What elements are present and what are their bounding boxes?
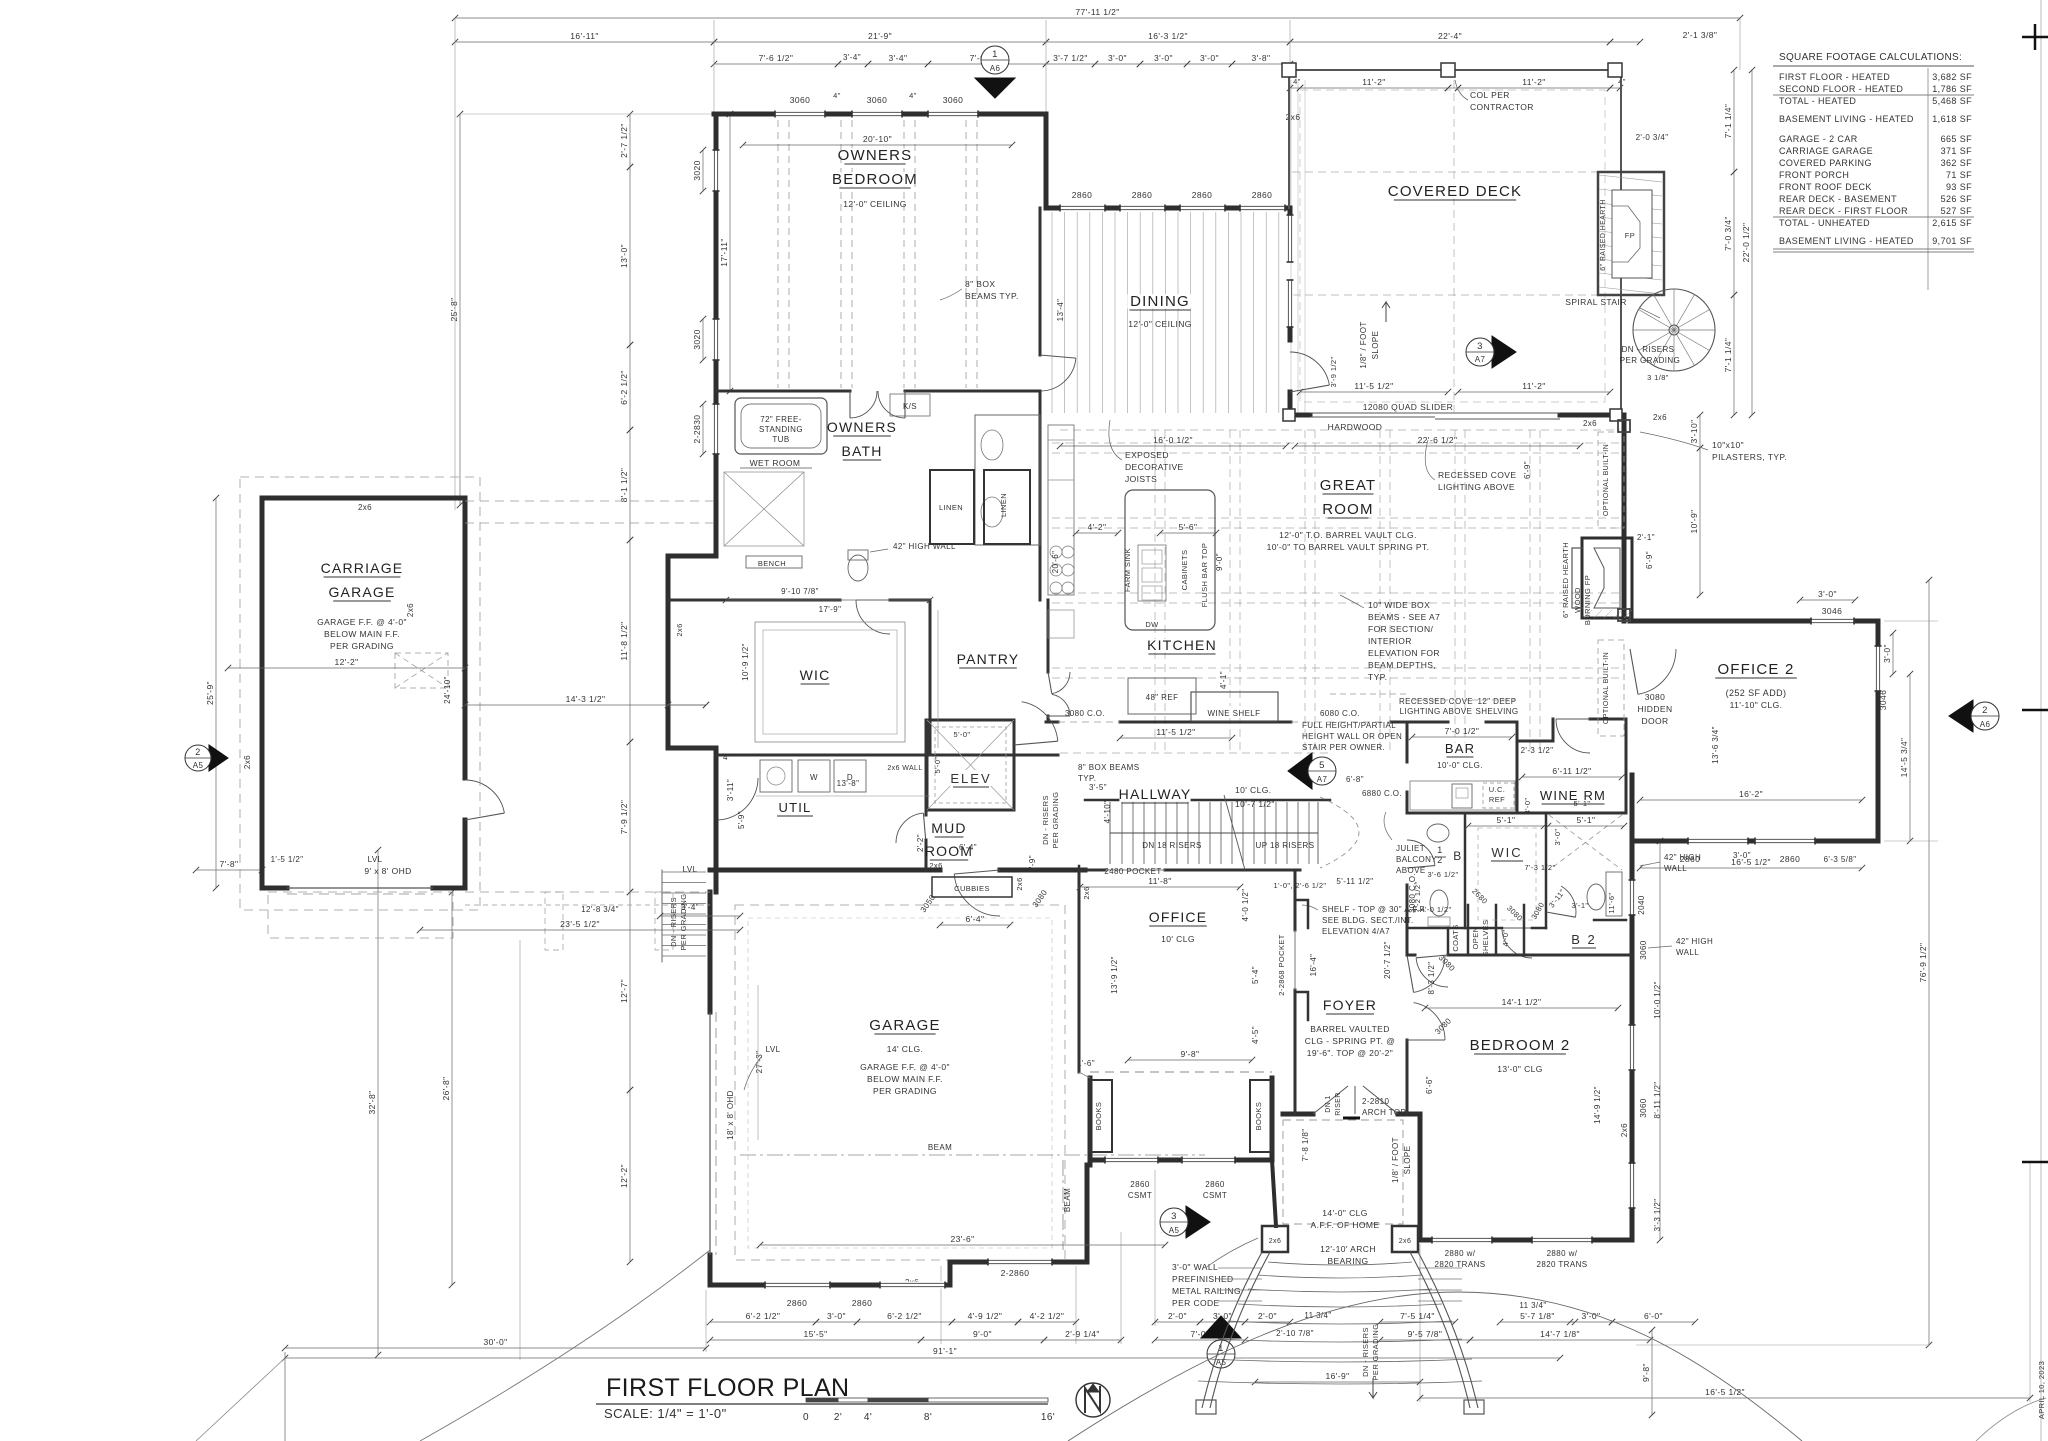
svg-text:6" RAISED HEARTH: 6" RAISED HEARTH — [1561, 542, 1570, 618]
svg-text:3'-4": 3'-4" — [889, 53, 908, 63]
svg-text:DN - RISERS: DN - RISERS — [1041, 795, 1050, 845]
svg-text:RECESSED COVE: RECESSED COVE — [1438, 470, 1516, 480]
svg-text:4": 4" — [723, 753, 731, 762]
svg-text:2x6: 2x6 — [675, 623, 684, 636]
svg-text:12'-0" CEILING: 12'-0" CEILING — [843, 199, 907, 209]
svg-text:24'-10": 24'-10" — [443, 676, 452, 704]
svg-text:6'-0": 6'-0" — [1644, 1311, 1663, 1321]
svg-text:7'-9 1/2": 7'-9 1/2" — [619, 800, 629, 835]
svg-text:1: 1 — [992, 49, 998, 60]
svg-text:3'-0": 3'-0" — [1818, 589, 1837, 599]
svg-text:2x6: 2x6 — [1399, 1238, 1412, 1245]
svg-text:20'-7 1/2": 20'-7 1/2" — [1383, 941, 1392, 979]
svg-text:FULL HEIGHT/PARTIAL: FULL HEIGHT/PARTIAL — [1302, 721, 1396, 730]
svg-text:3080: 3080 — [1645, 692, 1666, 702]
svg-text:3060: 3060 — [1639, 1098, 1648, 1118]
svg-text:1/8" / FOOT: 1/8" / FOOT — [1359, 321, 1368, 368]
svg-text:3'-0": 3'-0" — [1523, 798, 1532, 815]
svg-text:13'-4": 13'-4" — [1056, 299, 1065, 322]
svg-text:8'-1 1/2": 8'-1 1/2" — [619, 468, 629, 503]
svg-text:3020: 3020 — [692, 160, 702, 181]
svg-text:2-2868 POCKET: 2-2868 POCKET — [1277, 934, 1286, 995]
svg-text:7'-8 1/8": 7'-8 1/8" — [1301, 1129, 1310, 1162]
svg-text:2860: 2860 — [1130, 1180, 1150, 1189]
svg-text:3'-4": 3'-4" — [843, 53, 861, 62]
svg-text:8" BOX: 8" BOX — [965, 279, 995, 289]
svg-text:2480 POCKET: 2480 POCKET — [1104, 867, 1161, 876]
svg-text:16'-5 1/2": 16'-5 1/2" — [1731, 857, 1771, 867]
svg-text:13'-8": 13'-8" — [837, 779, 860, 788]
svg-text:3'-0": 3'-0" — [1882, 644, 1892, 663]
svg-text:26'-8": 26'-8" — [441, 1076, 451, 1100]
svg-text:6'-9": 6'-9" — [1523, 461, 1532, 479]
svg-text:5'-6": 5'-6" — [1179, 522, 1198, 532]
svg-text:COL PER: COL PER — [1470, 90, 1510, 100]
svg-text:2820 TRANS: 2820 TRANS — [1537, 1260, 1588, 1269]
svg-text:ELEV: ELEV — [950, 771, 991, 786]
svg-text:2x6: 2x6 — [243, 755, 252, 769]
svg-text:527 SF: 527 SF — [1941, 206, 1973, 216]
svg-text:2,615 SF: 2,615 SF — [1932, 218, 1972, 228]
svg-text:SHELVES: SHELVES — [1481, 920, 1490, 957]
svg-text:3'-1": 3'-1" — [1572, 901, 1589, 910]
svg-text:12'-7": 12'-7" — [619, 979, 629, 1003]
svg-text:BATH: BATH — [841, 443, 882, 459]
svg-text:BEDROOM: BEDROOM — [832, 171, 918, 188]
svg-text:2x6: 2x6 — [1269, 1238, 1282, 1245]
svg-text:BENCH: BENCH — [758, 559, 786, 568]
svg-text:APRIL 10, 2023: APRIL 10, 2023 — [2037, 1361, 2046, 1419]
svg-text:13'-9 1/2": 13'-9 1/2" — [1110, 956, 1119, 994]
svg-text:DN 18 RISERS: DN 18 RISERS — [1142, 841, 1201, 850]
svg-text:8'-11 1/2": 8'-11 1/2" — [1653, 1081, 1662, 1118]
svg-text:25'-8": 25'-8" — [449, 297, 459, 321]
svg-text:3'-11": 3'-11" — [726, 779, 735, 801]
svg-text:BARREL VAULTED: BARREL VAULTED — [1310, 1024, 1390, 1034]
svg-text:FRONT ROOF DECK: FRONT ROOF DECK — [1779, 182, 1872, 192]
svg-text:10'-0" TO BARREL VAULT SPRING: 10'-0" TO BARREL VAULT SPRING PT. — [1267, 542, 1430, 552]
svg-text:3046: 3046 — [1822, 606, 1843, 616]
svg-text:COVERED DECK: COVERED DECK — [1388, 183, 1522, 200]
svg-text:PER GRADING: PER GRADING — [1371, 1324, 1380, 1381]
svg-text:10"x10": 10"x10" — [1712, 440, 1744, 450]
svg-text:11'-6": 11'-6" — [1607, 893, 1616, 914]
svg-text:12'-8 3/4": 12'-8 3/4" — [581, 905, 619, 914]
svg-text:7'-1 1/4": 7'-1 1/4" — [1723, 338, 1733, 373]
svg-text:22'-0 1/2": 22'-0 1/2" — [1741, 223, 1751, 263]
svg-text:EXPOSED: EXPOSED — [1125, 450, 1169, 460]
svg-text:STAIR PER OWNER.: STAIR PER OWNER. — [1302, 743, 1385, 752]
svg-text:COATS: COATS — [1451, 924, 1460, 951]
svg-text:LIGHTING ABOVE: LIGHTING ABOVE — [1438, 482, 1515, 492]
svg-text:GARAGE: GARAGE — [869, 1017, 940, 1034]
svg-text:UTIL: UTIL — [779, 800, 812, 815]
svg-text:12080 QUAD SLIDER: 12080 QUAD SLIDER — [1363, 402, 1453, 412]
svg-text:5'-9": 5'-9" — [1028, 855, 1037, 873]
svg-text:6'-2 1/2": 6'-2 1/2" — [746, 1311, 781, 1321]
svg-text:PER GRADING: PER GRADING — [330, 641, 394, 651]
svg-text:BOOKS: BOOKS — [1254, 1102, 1263, 1131]
svg-text:17'-11": 17'-11" — [719, 238, 729, 267]
svg-text:3 1/8": 3 1/8" — [1647, 373, 1669, 382]
svg-text:3'-7 1/2": 3'-7 1/2" — [1053, 53, 1088, 63]
svg-text:FRONT PORCH: FRONT PORCH — [1779, 170, 1849, 180]
svg-text:4": 4" — [1293, 77, 1301, 86]
svg-text:3'-0": 3'-0" — [827, 1311, 846, 1321]
svg-text:WALL: WALL — [1676, 948, 1699, 957]
svg-text:2860: 2860 — [1252, 190, 1273, 200]
svg-text:DN - RISERS: DN - RISERS — [1361, 1327, 1370, 1377]
svg-text:3080 C.O.: 3080 C.O. — [1065, 709, 1105, 718]
svg-text:TOTAL - HEATED: TOTAL - HEATED — [1779, 96, 1856, 106]
svg-text:11'-10" CLG.: 11'-10" CLG. — [1730, 700, 1783, 710]
svg-text:10'-9": 10'-9" — [1689, 509, 1699, 533]
svg-text:6'-4": 6'-4" — [959, 843, 977, 852]
svg-text:11'-8 1/2": 11'-8 1/2" — [619, 621, 629, 660]
svg-text:WET ROOM: WET ROOM — [750, 458, 801, 468]
svg-text:ROOM: ROOM — [1322, 501, 1373, 518]
svg-text:11 3/4": 11 3/4" — [1519, 1301, 1546, 1310]
svg-text:SLOPE: SLOPE — [1403, 1146, 1412, 1175]
svg-text:OPTIONAL BUILT-IN: OPTIONAL BUILT-IN — [1603, 444, 1610, 516]
svg-text:2x6: 2x6 — [406, 603, 415, 617]
svg-text:93 SF: 93 SF — [1946, 182, 1972, 192]
svg-text:BELOW MAIN F.F.: BELOW MAIN F.F. — [324, 629, 400, 639]
svg-text:2'-7 1/2": 2'-7 1/2" — [619, 123, 629, 158]
svg-text:6'-6": 6'-6" — [1425, 1076, 1434, 1094]
svg-text:4'-2": 4'-2" — [1088, 522, 1107, 532]
svg-text:371 SF: 371 SF — [1941, 146, 1973, 156]
svg-text:11'-5 1/2": 11'-5 1/2" — [1354, 381, 1393, 391]
svg-text:362 SF: 362 SF — [1941, 158, 1973, 168]
svg-text:4'-0": 4'-0" — [1501, 930, 1510, 947]
svg-text:RISER: RISER — [1335, 1092, 1342, 1115]
svg-text:12'-0" CEILING: 12'-0" CEILING — [1128, 319, 1192, 329]
svg-text:CUBBIES: CUBBIES — [954, 884, 990, 893]
svg-text:5'-0": 5'-0" — [933, 757, 942, 774]
svg-text:SPIRAL STAIR: SPIRAL STAIR — [1565, 297, 1626, 307]
svg-text:2860: 2860 — [852, 1298, 873, 1308]
svg-text:6'-11 1/2": 6'-11 1/2" — [1552, 766, 1591, 776]
svg-text:11'-5 1/2": 11'-5 1/2" — [1156, 727, 1195, 737]
svg-text:10'-9 1/2": 10'-9 1/2" — [741, 643, 750, 681]
svg-text:JOISTS: JOISTS — [1125, 474, 1157, 484]
svg-text:6'-9": 6'-9" — [1645, 551, 1654, 569]
svg-text:LVL: LVL — [766, 1045, 781, 1054]
svg-text:A7: A7 — [1475, 355, 1486, 364]
svg-text:BALCONY: BALCONY — [1396, 855, 1437, 864]
svg-text:2860: 2860 — [787, 1298, 808, 1308]
svg-text:COVERED PARKING: COVERED PARKING — [1779, 158, 1872, 168]
svg-text:OPEN: OPEN — [1471, 927, 1480, 950]
svg-text:9'-5 7/8": 9'-5 7/8" — [1408, 1329, 1443, 1339]
svg-text:16'-4": 16'-4" — [1309, 954, 1318, 977]
svg-text:ELEVATION FOR: ELEVATION FOR — [1368, 648, 1440, 658]
svg-text:22'-4": 22'-4" — [1438, 31, 1462, 41]
svg-text:9'-0": 9'-0" — [1215, 553, 1224, 571]
svg-text:BEDROOM 2: BEDROOM 2 — [1470, 1037, 1571, 1054]
svg-text:BASEMENT LIVING - HEATED: BASEMENT LIVING - HEATED — [1779, 236, 1914, 246]
svg-text:K/S: K/S — [903, 402, 917, 411]
svg-text:OWNERS: OWNERS — [838, 147, 913, 164]
svg-text:B 2: B 2 — [1571, 932, 1597, 947]
svg-text:TYP.: TYP. — [1078, 774, 1096, 783]
svg-text:2x6: 2x6 — [1082, 886, 1091, 899]
svg-text:BASEMENT LIVING - HEATED: BASEMENT LIVING - HEATED — [1779, 114, 1914, 124]
svg-text:RECESSED COVE: RECESSED COVE — [1399, 697, 1473, 706]
svg-text:5'-1": 5'-1" — [1497, 815, 1516, 825]
svg-text:11'-2": 11'-2" — [1522, 381, 1545, 391]
svg-text:JULIET: JULIET — [1396, 844, 1425, 853]
svg-text:U.C.: U.C. — [1489, 785, 1506, 794]
svg-text:1: 1 — [1437, 845, 1442, 855]
svg-text:30'-0": 30'-0" — [483, 1337, 507, 1347]
svg-text:PER CODE: PER CODE — [1172, 1298, 1220, 1308]
svg-text:DINING: DINING — [1130, 293, 1190, 310]
svg-text:2'-0": 2'-0" — [1258, 1311, 1277, 1321]
svg-text:4'-5": 4'-5" — [1251, 1026, 1260, 1044]
svg-text:TYP.: TYP. — [1368, 672, 1387, 682]
svg-text:2820 TRANS: 2820 TRANS — [1435, 1260, 1486, 1269]
svg-text:4'-0 1/2": 4'-0 1/2" — [1241, 889, 1250, 922]
svg-text:3'-3 1/2": 3'-3 1/2" — [1653, 1199, 1662, 1232]
svg-text:4'-9 1/2": 4'-9 1/2" — [968, 1311, 1003, 1321]
svg-text:SLOPE: SLOPE — [1371, 331, 1380, 360]
svg-text:4'-2 1/2": 4'-2 1/2" — [1030, 1311, 1065, 1321]
svg-text:3'-9 1/2": 3'-9 1/2" — [1329, 356, 1338, 387]
svg-text:SECOND FLOOR - HEATED: SECOND FLOOR - HEATED — [1779, 84, 1903, 94]
svg-text:2x6: 2x6 — [1286, 112, 1301, 122]
svg-text:22'-6 1/2": 22'-6 1/2" — [1418, 435, 1458, 445]
svg-text:GARAGE F.F. @ 4'-0": GARAGE F.F. @ 4'-0" — [317, 617, 407, 627]
svg-text:FOYER: FOYER — [1323, 997, 1377, 1013]
svg-text:14'-9 1/2": 14'-9 1/2" — [1593, 1086, 1602, 1124]
svg-text:6880 C.O.: 6880 C.O. — [1362, 789, 1402, 798]
svg-text:16'-9": 16'-9" — [1325, 1371, 1349, 1381]
svg-text:1,786 SF: 1,786 SF — [1932, 84, 1972, 94]
svg-text:3'-0": 3'-0" — [1108, 53, 1127, 63]
svg-text:MUD: MUD — [931, 820, 966, 836]
svg-text:2: 2 — [195, 747, 200, 757]
svg-text:LVL: LVL — [368, 855, 383, 864]
svg-text:FP: FP — [1625, 231, 1635, 240]
svg-text:2x6: 2x6 — [1620, 1123, 1629, 1137]
svg-text:2': 2' — [834, 1412, 842, 1423]
svg-text:LIGHTING ABOVE: LIGHTING ABOVE — [1400, 707, 1473, 716]
svg-text:HARDWOOD: HARDWOOD — [1328, 422, 1383, 432]
svg-text:PER GRADING: PER GRADING — [1620, 356, 1680, 365]
svg-text:1'-5 1/2": 1'-5 1/2" — [271, 855, 304, 864]
svg-text:REF: REF — [1489, 795, 1505, 804]
svg-text:REAR DECK - BASEMENT: REAR DECK - BASEMENT — [1779, 194, 1897, 204]
svg-text:2'-2": 2'-2" — [916, 834, 925, 852]
svg-text:7'-0 1/2": 7'-0 1/2" — [1445, 726, 1480, 736]
svg-text:21'-9": 21'-9" — [868, 31, 892, 41]
svg-text:14'-7 1/8": 14'-7 1/8" — [1540, 1329, 1580, 1339]
svg-text:A6: A6 — [990, 64, 1001, 73]
svg-text:71 SF: 71 SF — [1946, 170, 1972, 180]
svg-text:LINEN: LINEN — [999, 493, 1008, 517]
svg-text:23'-6": 23'-6" — [950, 1234, 974, 1244]
svg-text:2880 w/: 2880 w/ — [1547, 1249, 1578, 1258]
svg-text:10" WIDE BOX: 10" WIDE BOX — [1368, 600, 1430, 610]
svg-text:14'-0" CLG: 14'-0" CLG — [1322, 1208, 1368, 1218]
svg-text:20'-10": 20'-10" — [863, 134, 892, 144]
svg-text:3'-10": 3'-10" — [1689, 419, 1699, 443]
svg-text:2040: 2040 — [1637, 895, 1646, 915]
svg-text:HALLWAY: HALLWAY — [1119, 786, 1192, 802]
svg-text:CARRIAGE: CARRIAGE — [321, 560, 404, 576]
svg-text:13'-0": 13'-0" — [619, 244, 629, 268]
svg-text:3060: 3060 — [1639, 940, 1648, 960]
svg-text:BEAM: BEAM — [1063, 1188, 1072, 1212]
svg-text:GREAT: GREAT — [1320, 477, 1377, 494]
svg-text:2: 2 — [1982, 705, 1988, 716]
svg-text:48" REF: 48" REF — [1146, 693, 1179, 702]
svg-text:9'-0": 9'-0" — [973, 1329, 992, 1339]
svg-text:1'-6": 1'-6" — [1077, 1059, 1095, 1068]
svg-text:KITCHEN: KITCHEN — [1147, 637, 1217, 653]
svg-text:17'-9": 17'-9" — [819, 605, 842, 614]
svg-text:CARRIAGE GARAGE: CARRIAGE GARAGE — [1779, 146, 1873, 156]
svg-text:2-2830: 2-2830 — [692, 415, 702, 444]
svg-text:WIC: WIC — [1491, 845, 1522, 860]
svg-text:6'-2 1/2": 6'-2 1/2" — [619, 370, 629, 405]
svg-text:SHELVING: SHELVING — [1475, 707, 1518, 716]
svg-text:2-2810: 2-2810 — [1362, 1097, 1389, 1106]
svg-text:B: B — [1453, 849, 1463, 863]
svg-text:3'-0": 3'-0" — [1154, 53, 1173, 63]
svg-text:2880 w/: 2880 w/ — [1445, 1249, 1476, 1258]
svg-text:A.F.F. OF HOME: A.F.F. OF HOME — [1311, 1220, 1380, 1230]
svg-text:BOOKS: BOOKS — [1094, 1102, 1103, 1131]
svg-text:TUB: TUB — [772, 435, 789, 444]
svg-text:A7: A7 — [1317, 775, 1328, 784]
svg-text:1'-0", 2'-6 1/2": 1'-0", 2'-6 1/2" — [1274, 881, 1327, 890]
svg-text:7'-1 1/4": 7'-1 1/4" — [1723, 104, 1733, 139]
svg-text:PILASTERS, TYP.: PILASTERS, TYP. — [1712, 452, 1787, 462]
svg-text:7'-0 3/4": 7'-0 3/4" — [1723, 216, 1733, 251]
svg-text:DECORATIVE: DECORATIVE — [1125, 462, 1184, 472]
svg-text:BURNING FP: BURNING FP — [1583, 575, 1592, 625]
svg-text:77'-11 1/2": 77'-11 1/2" — [1075, 7, 1119, 17]
svg-text:526 SF: 526 SF — [1941, 194, 1973, 204]
svg-text:10'-0 1/2": 10'-0 1/2" — [1653, 981, 1662, 1019]
svg-text:TOTAL - UNHEATED: TOTAL - UNHEATED — [1779, 218, 1870, 228]
svg-text:27'-3": 27'-3" — [755, 1051, 764, 1074]
svg-text:2'-10 7/8": 2'-10 7/8" — [1276, 1329, 1314, 1338]
svg-text:91'-1": 91'-1" — [933, 1346, 957, 1356]
svg-text:BEAM DEPTHS,: BEAM DEPTHS, — [1368, 660, 1436, 670]
svg-text:INTERIOR: INTERIOR — [1368, 636, 1412, 646]
svg-text:16': 16' — [1041, 1412, 1055, 1423]
svg-text:DN 1: DN 1 — [1325, 1095, 1332, 1113]
svg-text:DW: DW — [1145, 620, 1159, 629]
svg-text:BELOW MAIN F.F.: BELOW MAIN F.F. — [867, 1074, 943, 1084]
svg-text:10' CLG.: 10' CLG. — [1235, 785, 1271, 795]
svg-text:25'-9": 25'-9" — [205, 681, 215, 705]
svg-text:6'-3 5/8": 6'-3 5/8" — [1824, 855, 1857, 864]
svg-text:8': 8' — [924, 1412, 932, 1423]
svg-text:A5: A5 — [1169, 1226, 1180, 1235]
svg-text:72" FREE-: 72" FREE- — [760, 415, 802, 424]
svg-text:23'-5 1/2": 23'-5 1/2" — [560, 919, 600, 929]
svg-text:16'-11": 16'-11" — [570, 31, 599, 41]
svg-text:METAL RAILING: METAL RAILING — [1172, 1286, 1241, 1296]
svg-text:2860: 2860 — [1780, 854, 1801, 864]
svg-text:16'-2": 16'-2" — [1739, 789, 1763, 799]
svg-text:ARCH TOP: ARCH TOP — [1362, 1108, 1406, 1117]
svg-text:OWNERS: OWNERS — [827, 419, 897, 435]
svg-text:6080 C.O.: 6080 C.O. — [1320, 709, 1360, 718]
svg-text:1,618 SF: 1,618 SF — [1932, 114, 1972, 124]
svg-text:3060: 3060 — [790, 95, 811, 105]
svg-text:2: 2 — [1437, 855, 1442, 865]
svg-text:PER GRADING: PER GRADING — [873, 1086, 937, 1096]
svg-text:SQUARE FOOTAGE CALCULATIONS:: SQUARE FOOTAGE CALCULATIONS: — [1779, 52, 1962, 63]
svg-text:11'-2": 11'-2" — [1362, 77, 1385, 87]
svg-text:12'-10' ARCH: 12'-10' ARCH — [1320, 1244, 1376, 1254]
svg-text:9,701 SF: 9,701 SF — [1932, 236, 1972, 246]
svg-text:0: 0 — [803, 1412, 809, 1423]
svg-text:W: W — [810, 773, 818, 782]
svg-text:CABINETS: CABINETS — [1180, 550, 1189, 591]
svg-text:11'-2": 11'-2" — [1522, 77, 1545, 87]
svg-text:DN - RISERS: DN - RISERS — [1622, 345, 1675, 354]
svg-text:2x6: 2x6 — [929, 861, 942, 870]
svg-text:13'-6 3/4": 13'-6 3/4" — [1711, 726, 1720, 764]
svg-text:3,682 SF: 3,682 SF — [1932, 72, 1972, 82]
svg-text:5'-11 1/2": 5'-11 1/2" — [1336, 877, 1373, 886]
svg-text:12'-0" T.O. BARREL VAULT CLG.: 12'-0" T.O. BARREL VAULT CLG. — [1279, 530, 1417, 540]
svg-text:(252 SF ADD): (252 SF ADD) — [1726, 688, 1787, 698]
svg-text:GARAGE - 2 CAR: GARAGE - 2 CAR — [1779, 134, 1858, 144]
svg-text:3: 3 — [1171, 1211, 1177, 1222]
svg-text:76'-9 1/2": 76'-9 1/2" — [1918, 943, 1928, 983]
svg-text:BEAM: BEAM — [928, 1143, 952, 1152]
svg-text:15'-5": 15'-5" — [803, 1329, 827, 1339]
svg-text:BAR: BAR — [1445, 741, 1475, 756]
svg-text:4'-1": 4'-1" — [1219, 671, 1228, 689]
svg-text:DOOR: DOOR — [1641, 716, 1668, 726]
svg-text:5'-0": 5'-0" — [954, 730, 971, 739]
svg-text:3'-0": 3'-0" — [1200, 53, 1219, 63]
svg-text:A6: A6 — [1980, 720, 1991, 729]
svg-text:18' x 8' OHD: 18' x 8' OHD — [726, 1090, 735, 1140]
svg-text:STANDING: STANDING — [759, 425, 803, 434]
svg-text:2860: 2860 — [1132, 190, 1153, 200]
svg-text:2'-1 3/8": 2'-1 3/8" — [1683, 30, 1718, 40]
svg-text:20'-6": 20'-6" — [1051, 551, 1060, 574]
svg-text:5'-9": 5'-9" — [737, 811, 746, 829]
svg-text:FARM SINK: FARM SINK — [1123, 548, 1132, 592]
svg-text:2860: 2860 — [1072, 190, 1093, 200]
svg-text:4'-10": 4'-10" — [1103, 801, 1112, 824]
svg-text:2'-9 1/4": 2'-9 1/4" — [1065, 1329, 1100, 1339]
svg-text:2'-0 3/4": 2'-0 3/4" — [1636, 133, 1669, 142]
svg-text:CONTRACTOR: CONTRACTOR — [1470, 102, 1534, 112]
svg-text:2'-1": 2'-1" — [1637, 533, 1655, 542]
svg-text:3020: 3020 — [692, 329, 702, 350]
svg-text:SCALE: 1/4" = 1'-0": SCALE: 1/4" = 1'-0" — [604, 1406, 727, 1421]
svg-text:DN - RISERS: DN - RISERS — [669, 897, 678, 947]
svg-text:2x6: 2x6 — [358, 503, 372, 512]
svg-text:HIDDEN: HIDDEN — [1638, 704, 1673, 714]
svg-text:7'-8": 7'-8" — [220, 859, 239, 869]
svg-text:6'-2 1/2": 6'-2 1/2" — [887, 1311, 922, 1321]
svg-text:4": 4" — [909, 91, 917, 100]
svg-text:14' CLG.: 14' CLG. — [887, 1044, 923, 1054]
